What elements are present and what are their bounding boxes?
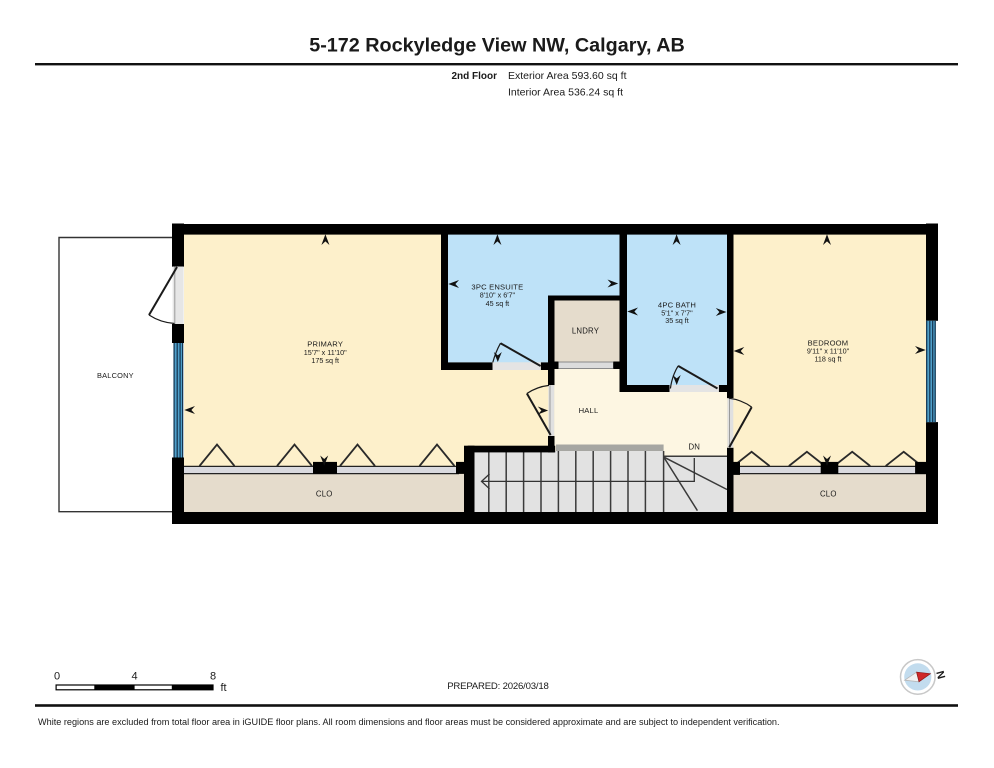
- svg-text:BALCONY: BALCONY: [97, 371, 134, 380]
- svg-text:2nd Floor: 2nd Floor: [451, 71, 497, 82]
- svg-text:LNDRY: LNDRY: [572, 327, 600, 336]
- svg-text:4: 4: [132, 671, 138, 683]
- svg-text:35 sq ft: 35 sq ft: [665, 316, 689, 325]
- svg-text:White regions are excluded fro: White regions are excluded from total fl…: [38, 717, 780, 727]
- svg-text:PREPARED: 2026/03/18: PREPARED: 2026/03/18: [447, 681, 548, 692]
- svg-text:N: N: [933, 670, 947, 681]
- svg-text:DN: DN: [688, 442, 700, 451]
- svg-text:118 sq ft: 118 sq ft: [814, 355, 841, 364]
- svg-text:Interior Area 536.24 sq ft: Interior Area 536.24 sq ft: [508, 87, 623, 99]
- svg-text:CLO: CLO: [820, 489, 837, 498]
- svg-text:45 sq ft: 45 sq ft: [486, 299, 510, 308]
- svg-text:CLO: CLO: [316, 489, 333, 498]
- svg-text:175 sq ft: 175 sq ft: [311, 356, 339, 365]
- svg-text:8: 8: [210, 671, 216, 683]
- svg-text:ft: ft: [221, 682, 227, 694]
- svg-text:Exterior Area 593.60 sq ft: Exterior Area 593.60 sq ft: [508, 70, 627, 82]
- svg-text:5-172 Rockyledge View NW, Calg: 5-172 Rockyledge View NW, Calgary, AB: [309, 35, 685, 57]
- svg-text:HALL: HALL: [579, 406, 599, 415]
- svg-text:0: 0: [54, 671, 60, 683]
